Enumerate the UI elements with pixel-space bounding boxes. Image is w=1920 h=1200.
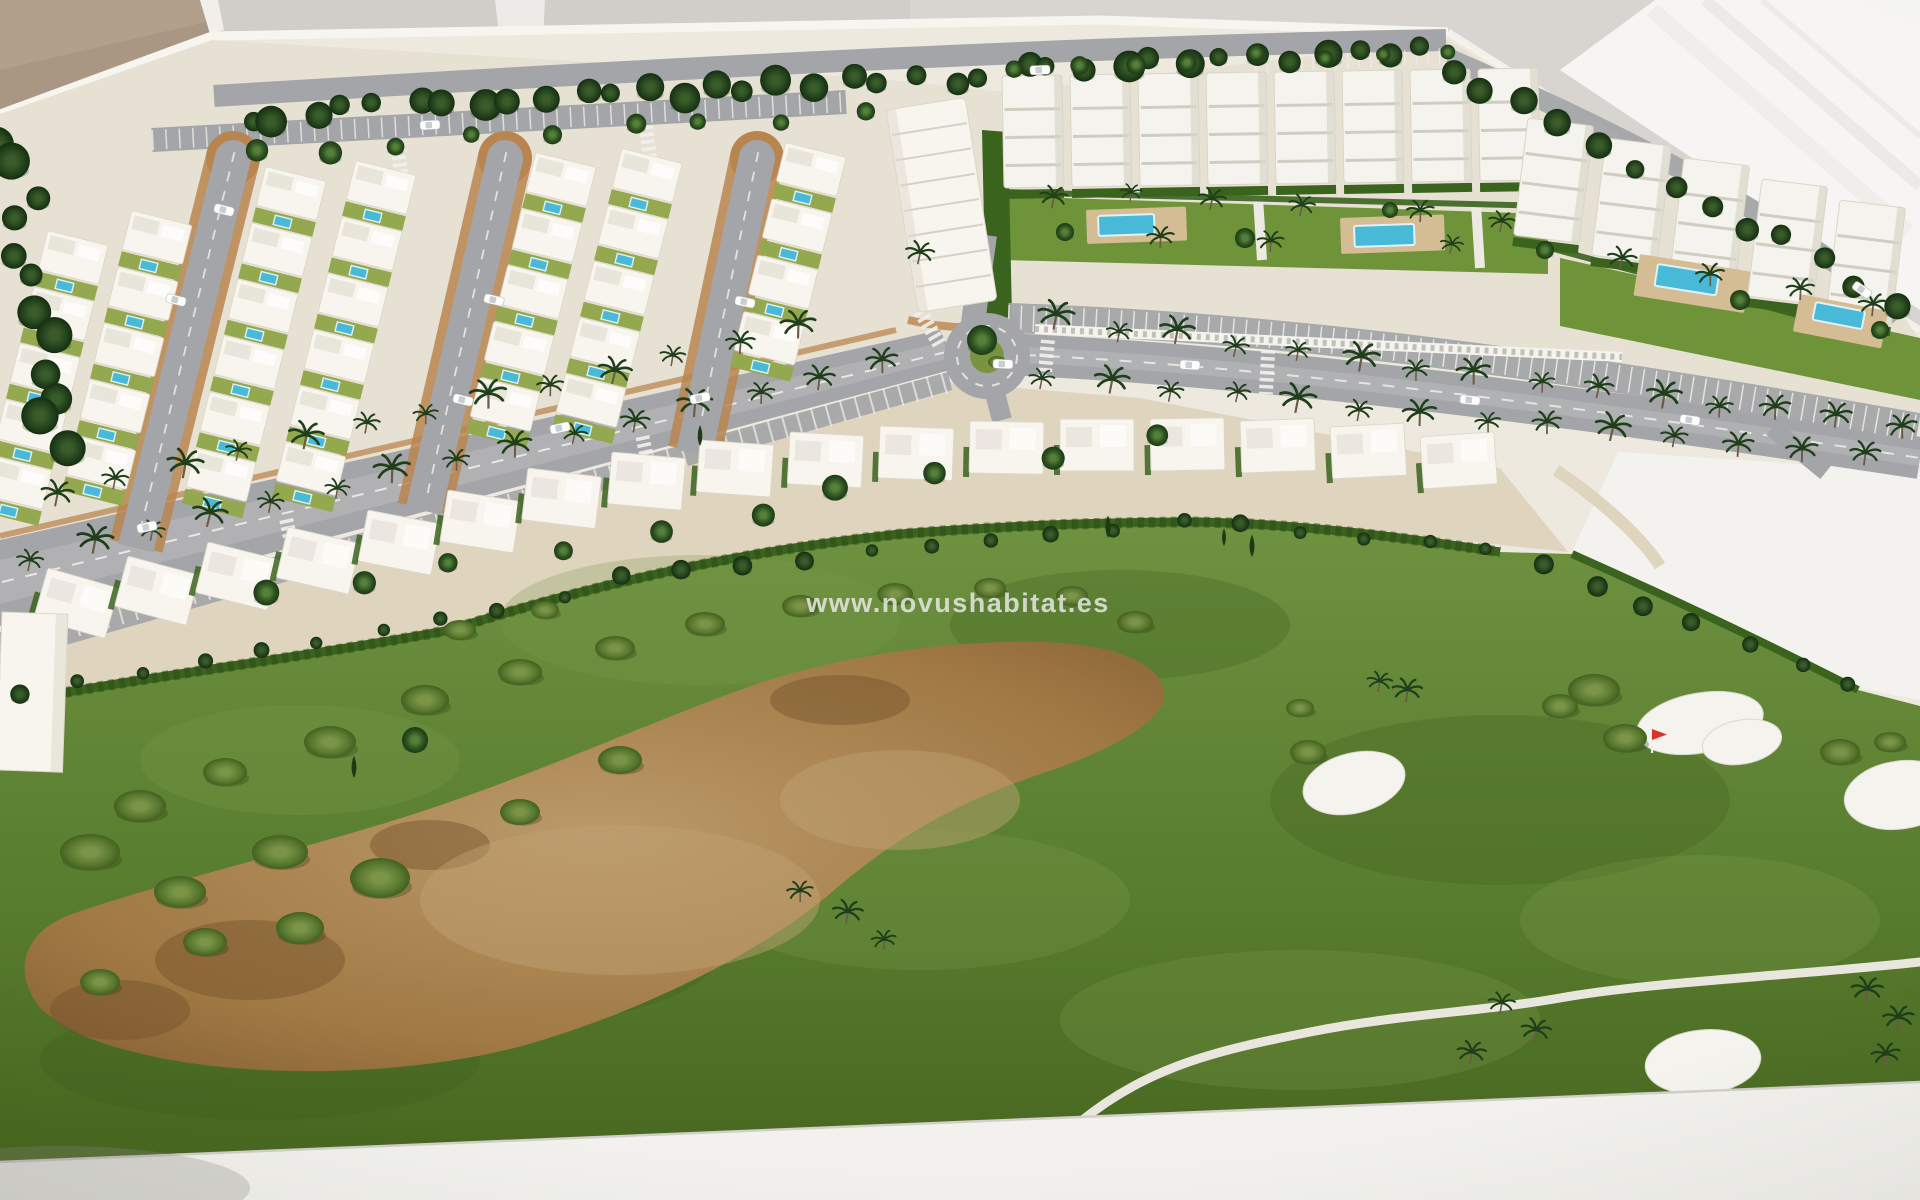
tree: [387, 138, 405, 156]
bush: [154, 876, 206, 908]
car: [1460, 394, 1481, 405]
tree: [923, 462, 946, 485]
car: [1030, 65, 1050, 75]
tree: [577, 79, 602, 104]
block-floor-line: [1073, 108, 1129, 109]
tree: [1633, 596, 1653, 616]
apartment-block: [1206, 72, 1268, 196]
pool: [1354, 224, 1415, 247]
tree: [1231, 514, 1249, 532]
mid-villa: [690, 440, 774, 501]
waste-patch: [780, 750, 1020, 850]
tree: [967, 325, 997, 355]
tree: [907, 65, 927, 85]
villa-roof-detail: [531, 477, 559, 500]
tree: [773, 114, 789, 130]
tree: [670, 83, 701, 114]
tree: [1466, 78, 1492, 104]
tree: [428, 89, 455, 116]
tree: [1796, 658, 1810, 672]
tree: [733, 556, 753, 576]
tree: [1209, 48, 1227, 66]
pool: [1098, 214, 1155, 236]
tree: [947, 73, 970, 96]
tree: [1626, 160, 1645, 179]
villa-roof-detail: [795, 440, 822, 461]
tree: [255, 106, 287, 138]
tree: [246, 139, 268, 161]
apartment-block: [1002, 75, 1064, 199]
tree: [1056, 223, 1074, 241]
bush: [1290, 740, 1326, 764]
tree: [866, 73, 887, 94]
watermark-text: www.novushabitat.es: [805, 588, 1110, 618]
villa-roof-detail: [1427, 443, 1454, 465]
tree: [822, 475, 848, 501]
block-hedge: [1344, 184, 1404, 194]
tree: [1510, 87, 1537, 114]
tree: [353, 571, 376, 594]
tree: [1543, 109, 1570, 136]
bush: [1603, 724, 1647, 752]
tree: [10, 685, 29, 704]
tree: [1178, 53, 1196, 71]
tree: [50, 430, 86, 466]
villa-roof-detail: [564, 479, 592, 504]
bush: [1820, 739, 1860, 765]
tree: [1177, 513, 1192, 528]
bush: [1117, 611, 1153, 633]
apartment-block: [1410, 69, 1472, 193]
tree: [305, 102, 332, 129]
villa-roof-detail: [1190, 424, 1216, 446]
tree: [1682, 613, 1700, 631]
tree: [1586, 132, 1613, 159]
tree: [1, 243, 27, 269]
villa-roof-detail: [483, 502, 512, 528]
tree: [671, 560, 690, 579]
tree: [378, 624, 390, 636]
tree: [1840, 677, 1855, 692]
villa-roof-detail: [1246, 428, 1273, 449]
block-floor-line: [1142, 163, 1198, 164]
villa-roof-detail: [1460, 438, 1487, 462]
block-floor-line: [1278, 161, 1334, 162]
tree: [319, 141, 342, 164]
tree: [21, 397, 58, 434]
tree: [1350, 40, 1370, 60]
tree: [1442, 60, 1466, 84]
photo-architectural-model: www.novushabitat.es: [0, 0, 1920, 1200]
villa-roof-detail: [885, 434, 912, 455]
car: [993, 359, 1013, 369]
block-floor-line: [1005, 109, 1061, 110]
tree: [1070, 56, 1088, 74]
block-floor-line: [1346, 160, 1402, 161]
car: [420, 120, 440, 130]
tree: [137, 667, 150, 680]
block-floor-line: [1074, 164, 1130, 165]
bush: [203, 758, 247, 786]
bush: [350, 858, 410, 898]
block-hedge: [1140, 187, 1200, 197]
block-floor-line: [1210, 162, 1266, 163]
tree: [1666, 177, 1688, 199]
tree: [463, 126, 480, 143]
villa-roof-detail: [1100, 425, 1126, 447]
block-floor-line: [1413, 131, 1469, 132]
grass-patch: [140, 705, 460, 815]
tree: [1735, 218, 1759, 242]
block-floor-line: [1277, 105, 1333, 106]
tree: [1884, 293, 1910, 319]
tree: [310, 637, 322, 649]
tree: [36, 317, 72, 353]
tree: [254, 642, 270, 658]
tree: [866, 544, 878, 556]
garden-walkway: [1476, 204, 1480, 268]
tree: [1247, 44, 1264, 61]
block-floor-line: [1209, 106, 1265, 107]
tree: [253, 580, 279, 606]
mid-villa: [1414, 432, 1498, 493]
bush: [304, 726, 356, 758]
tree: [433, 611, 447, 625]
tree: [1005, 60, 1022, 77]
apartment-block: [1274, 71, 1336, 195]
tree: [795, 552, 814, 571]
tree: [924, 539, 939, 554]
tree: [1771, 225, 1791, 245]
bush: [401, 685, 449, 715]
tree: [2, 205, 27, 230]
bush: [531, 601, 559, 619]
block-floor-line: [1073, 136, 1129, 137]
villa-roof-detail: [828, 440, 855, 463]
tree: [1382, 202, 1398, 218]
tree: [1587, 576, 1608, 597]
block-hedge: [1276, 185, 1336, 195]
mid-villa: [1054, 419, 1134, 475]
grass-patch: [1520, 855, 1880, 985]
tree: [731, 80, 753, 102]
villa-roof-detail: [649, 461, 677, 485]
villa-roof-detail: [919, 433, 946, 456]
tree: [703, 70, 731, 98]
villa-roof-detail: [1010, 428, 1036, 450]
tree: [752, 504, 775, 527]
tree: [559, 591, 571, 603]
villa-roof-detail: [1280, 425, 1307, 448]
tree: [1317, 50, 1333, 66]
tree: [329, 95, 349, 115]
bush: [500, 799, 540, 825]
bush: [598, 746, 642, 774]
car: [1180, 360, 1200, 370]
tree: [1730, 290, 1750, 310]
foreground-building: [0, 612, 68, 772]
villa-roof-detail: [1370, 430, 1397, 453]
tree: [800, 73, 829, 102]
block-floor-line: [1345, 132, 1401, 133]
villa-roof-detail: [1336, 433, 1363, 454]
villa-roof-detail: [738, 449, 765, 473]
tree: [1042, 526, 1058, 542]
tree: [438, 553, 457, 572]
hedge-stub: [1144, 445, 1151, 475]
tree: [1814, 247, 1835, 268]
tree: [968, 68, 987, 87]
tree: [1376, 47, 1390, 61]
villa-roof-detail: [616, 460, 644, 482]
tree: [20, 264, 43, 287]
scene-canvas: www.novushabitat.es: [0, 0, 1920, 1200]
hedge-stub: [872, 452, 879, 482]
tree: [402, 727, 428, 753]
villa-roof-detail: [1066, 427, 1092, 447]
tree: [650, 520, 673, 543]
tree: [1440, 45, 1455, 60]
tree: [612, 566, 631, 585]
bush: [444, 620, 476, 640]
bush: [1874, 732, 1906, 752]
bush: [685, 612, 725, 636]
villa-roof-detail: [704, 448, 731, 470]
waste-patch: [770, 675, 910, 725]
block-floor-line: [1141, 135, 1197, 136]
tree: [984, 533, 998, 547]
tree: [1127, 55, 1146, 74]
bush: [276, 912, 324, 944]
tree: [1357, 532, 1370, 545]
tree: [601, 84, 620, 103]
tree: [1536, 241, 1554, 259]
block-hedge: [1412, 183, 1472, 193]
tree: [636, 73, 664, 101]
bush: [114, 790, 166, 822]
bush: [1286, 699, 1314, 717]
tree: [198, 653, 213, 668]
tree: [1410, 37, 1429, 56]
tree: [1294, 526, 1307, 539]
tree: [26, 186, 50, 210]
tree: [1146, 424, 1168, 446]
bush: [595, 636, 635, 660]
tree: [1871, 321, 1889, 339]
bush: [80, 969, 120, 995]
tree: [626, 114, 646, 134]
tree: [543, 125, 562, 144]
tree: [533, 86, 560, 113]
grass-patch: [1060, 950, 1540, 1090]
bush: [1542, 694, 1578, 718]
block-floor-line: [1005, 137, 1061, 138]
tree: [760, 65, 791, 96]
block-floor-line: [1141, 107, 1197, 108]
tree: [1702, 196, 1723, 217]
block-floor-line: [1414, 159, 1470, 160]
tree: [554, 541, 573, 560]
tree: [1278, 51, 1300, 73]
villa-roof-detail: [450, 499, 479, 523]
block-floor-line: [1209, 134, 1265, 135]
apartment-block: [1342, 70, 1404, 194]
block-floor-line: [1277, 133, 1333, 134]
garden-walkway: [1258, 198, 1262, 260]
tree: [842, 64, 867, 89]
apartment-block: [1070, 74, 1132, 198]
waste-patch: [420, 825, 820, 975]
tree: [1042, 447, 1065, 470]
mid-villa: [1324, 423, 1407, 483]
tree: [1235, 228, 1255, 248]
tree: [857, 102, 875, 120]
bush: [252, 835, 308, 869]
mid-villa: [781, 432, 864, 492]
apartment-block: [1138, 73, 1200, 197]
tree: [361, 93, 380, 112]
block-floor-line: [1413, 103, 1469, 104]
tree: [1742, 636, 1758, 652]
tree: [494, 89, 520, 115]
block-floor-line: [1345, 104, 1401, 105]
bush: [60, 834, 120, 870]
tree: [70, 674, 84, 688]
tree: [690, 113, 706, 129]
bush: [183, 928, 227, 956]
villa-roof-detail: [976, 429, 1002, 449]
mid-villa: [963, 421, 1044, 478]
mid-villa: [1234, 418, 1316, 477]
hedge-stub: [963, 447, 970, 477]
tree: [1424, 535, 1437, 548]
tree: [489, 603, 505, 619]
bush: [498, 659, 542, 685]
block-floor-line: [1006, 165, 1062, 166]
tree: [1479, 543, 1491, 555]
tree: [1534, 554, 1554, 574]
